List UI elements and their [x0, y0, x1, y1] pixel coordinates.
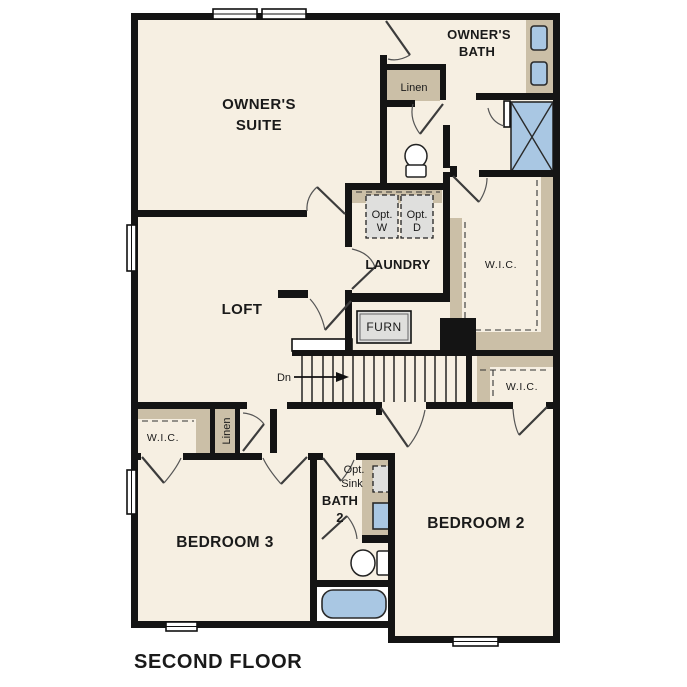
- window: [127, 470, 136, 514]
- window: [166, 622, 197, 631]
- window: [453, 637, 498, 646]
- stairs-label-dn: Dn: [277, 372, 291, 384]
- plan-title: SECOND FLOOR: [134, 651, 302, 673]
- bedroom2-wic-shelf-left: [477, 367, 490, 402]
- fixture-label-furn: FURN: [366, 320, 401, 334]
- appliance-label-opt-w-line1: Opt.: [372, 209, 393, 221]
- bedroom2-wic-shelf-top: [477, 356, 553, 367]
- window: [262, 9, 306, 19]
- room-label-bedroom3: BEDROOM 3: [176, 534, 273, 551]
- room-label-bath2-line1: BATH: [322, 493, 358, 508]
- owners-bath-sink-2: [531, 62, 547, 85]
- room-label-owners-suite-line2: SUITE: [236, 117, 282, 134]
- owners-wic-shelf-right: [541, 177, 553, 350]
- fixture-label-opt-sink-line1: Opt.: [344, 464, 365, 476]
- bath2-sink: [373, 503, 389, 529]
- closet-label-linen-side: Linen: [221, 418, 233, 445]
- appliance-label-opt-w-line2: W: [377, 222, 388, 234]
- stair-railing: [292, 339, 352, 351]
- bedroom3-wic-shelf-right: [196, 409, 210, 453]
- room-label-owners-bath-line2: BATH: [459, 44, 495, 59]
- appliance-label-opt-d-line1: Opt.: [407, 209, 428, 221]
- floorplan-page: OWNER'S SUITE OWNER'S BATH Linen LOFT Op…: [0, 0, 687, 687]
- room-label-owners-suite-line1: OWNER'S: [222, 96, 296, 113]
- bath2-toilet-fixture: [351, 550, 390, 576]
- floorplan-drawing: OWNER'S SUITE OWNER'S BATH Linen LOFT Op…: [0, 0, 687, 687]
- shower-fixture: [511, 102, 553, 172]
- room-label-bath2-line2: 2: [336, 510, 344, 525]
- closet-label-linen-top: Linen: [401, 82, 428, 94]
- room-label-loft: LOFT: [222, 301, 263, 318]
- room-label-laundry: LAUNDRY: [365, 257, 430, 272]
- bathtub-fixture: [322, 590, 386, 618]
- room-label-wic-bedroom3: W.I.C.: [147, 432, 179, 444]
- room-label-wic-bedroom2: W.I.C.: [506, 381, 538, 393]
- window: [213, 9, 257, 19]
- owners-wic-shelf-left: [450, 218, 462, 318]
- bath2-optional-sink: [373, 466, 389, 492]
- owners-bath-sink-1: [531, 26, 547, 50]
- room-label-bedroom2: BEDROOM 2: [427, 515, 524, 532]
- fixture-label-opt-sink-line2: Sink: [341, 478, 363, 490]
- window: [127, 225, 136, 271]
- room-label-wic-owners: W.I.C.: [485, 259, 517, 271]
- room-label-owners-bath-line1: OWNER'S: [447, 27, 511, 42]
- appliance-label-opt-d-line2: D: [413, 222, 421, 234]
- owners-toilet-fixture: [405, 145, 427, 178]
